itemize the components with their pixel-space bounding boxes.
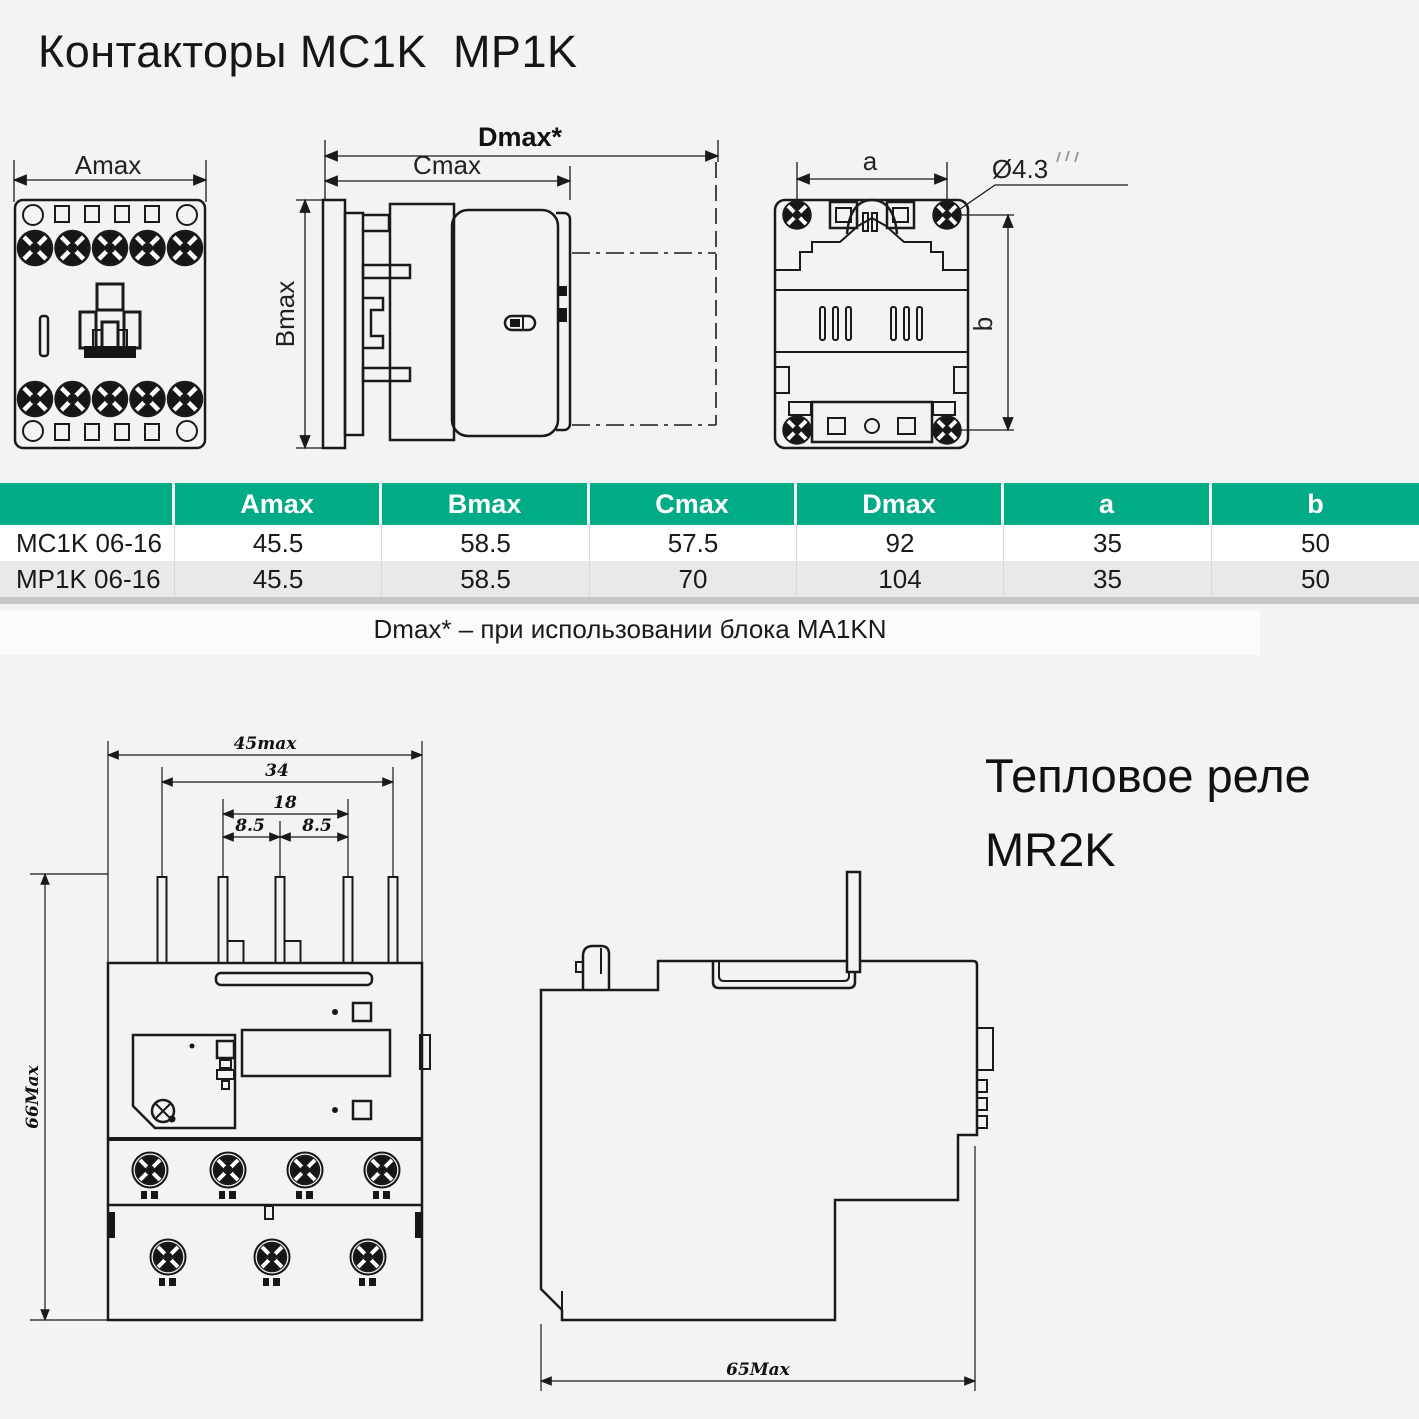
dim-65max-label: 65Max: [726, 1360, 790, 1380]
dim-a-label: a: [863, 146, 878, 176]
dim-dmax-label: Dmax*: [478, 122, 563, 152]
dim-cmax-label: Cmax: [413, 150, 481, 180]
relay-front-view: 45max 34 18 8.5 8.5: [20, 715, 490, 1345]
col-header-a: a: [1004, 483, 1212, 525]
mount-tab: [583, 946, 609, 990]
cell: 58.5: [382, 525, 590, 561]
row-name: MC1K 06-16: [0, 525, 175, 561]
cell: 57.5: [590, 525, 797, 561]
cell: 58.5: [382, 561, 590, 597]
relay-pin: [847, 872, 860, 972]
catalog-page: Контакторы MC1K MP1K Amax: [0, 0, 1419, 1419]
terminal-marks: [141, 1191, 390, 1199]
dim-66max-label: 66Max: [23, 1064, 43, 1128]
dmax-footnote: Dmax* – при использовании блока MA1KN: [0, 610, 1260, 655]
dim-85b-label: 8.5: [301, 816, 332, 836]
page-title: Контакторы MC1K MP1K: [38, 26, 578, 78]
cell: 104: [797, 561, 1004, 597]
dim-hole-label: Ø4.3: [992, 154, 1048, 184]
contactor-side-view: Dmax* Cmax Bmax: [270, 122, 718, 448]
adjust-dial-icon: [152, 1100, 176, 1123]
dim-45max-label: 45max: [234, 734, 298, 754]
row-name: MP1K 06-16: [0, 561, 175, 597]
tolerance-marks: [1057, 151, 1078, 162]
dim-b-label: b: [968, 317, 998, 331]
cell: 45.5: [175, 561, 382, 597]
relay-pins: [158, 877, 398, 963]
relay-title-line1: Тепловое реле: [985, 748, 1311, 803]
contactor-front-view: Amax: [14, 150, 206, 448]
dimensions-table: Amax Bmax Cmax Dmax a b MC1K 06-16 45.5 …: [0, 483, 1419, 604]
cell: 92: [797, 525, 1004, 561]
table-row: MC1K 06-16 45.5 58.5 57.5 92 35 50: [0, 525, 1419, 561]
cell: 35: [1004, 525, 1212, 561]
cell: 50: [1212, 561, 1419, 597]
col-header-cmax: Cmax: [590, 483, 797, 525]
terminal-marks: [159, 1278, 376, 1286]
cell: 50: [1212, 525, 1419, 561]
contactor-back-view: a Ø4.3: [775, 146, 1128, 448]
col-header: [0, 483, 175, 525]
relay-title-line2: MR2K: [985, 822, 1116, 877]
col-header-amax: Amax: [175, 483, 382, 525]
dim-bmax-label: Bmax: [270, 281, 300, 347]
contactor-mechanism: [80, 284, 140, 358]
col-header-bmax: Bmax: [382, 483, 590, 525]
table-header-row: Amax Bmax Cmax Dmax a b: [0, 483, 1419, 525]
cell: 70: [590, 561, 797, 597]
vent-slots: [820, 307, 922, 340]
relay-side-view: 65Max: [505, 858, 1065, 1408]
col-header-b: b: [1212, 483, 1419, 525]
cell: 35: [1004, 561, 1212, 597]
dim-85a-label: 8.5: [234, 816, 265, 836]
dim-amax-label: Amax: [75, 150, 141, 180]
contactor-drawings: Amax: [0, 118, 1419, 470]
dim-18-label: 18: [273, 793, 297, 813]
table-bottom-strip: [0, 597, 1419, 604]
table-row: MP1K 06-16 45.5 58.5 70 104 35 50: [0, 561, 1419, 597]
dim-34-label: 34: [265, 761, 289, 781]
cell: 45.5: [175, 525, 382, 561]
col-header-dmax: Dmax: [797, 483, 1004, 525]
